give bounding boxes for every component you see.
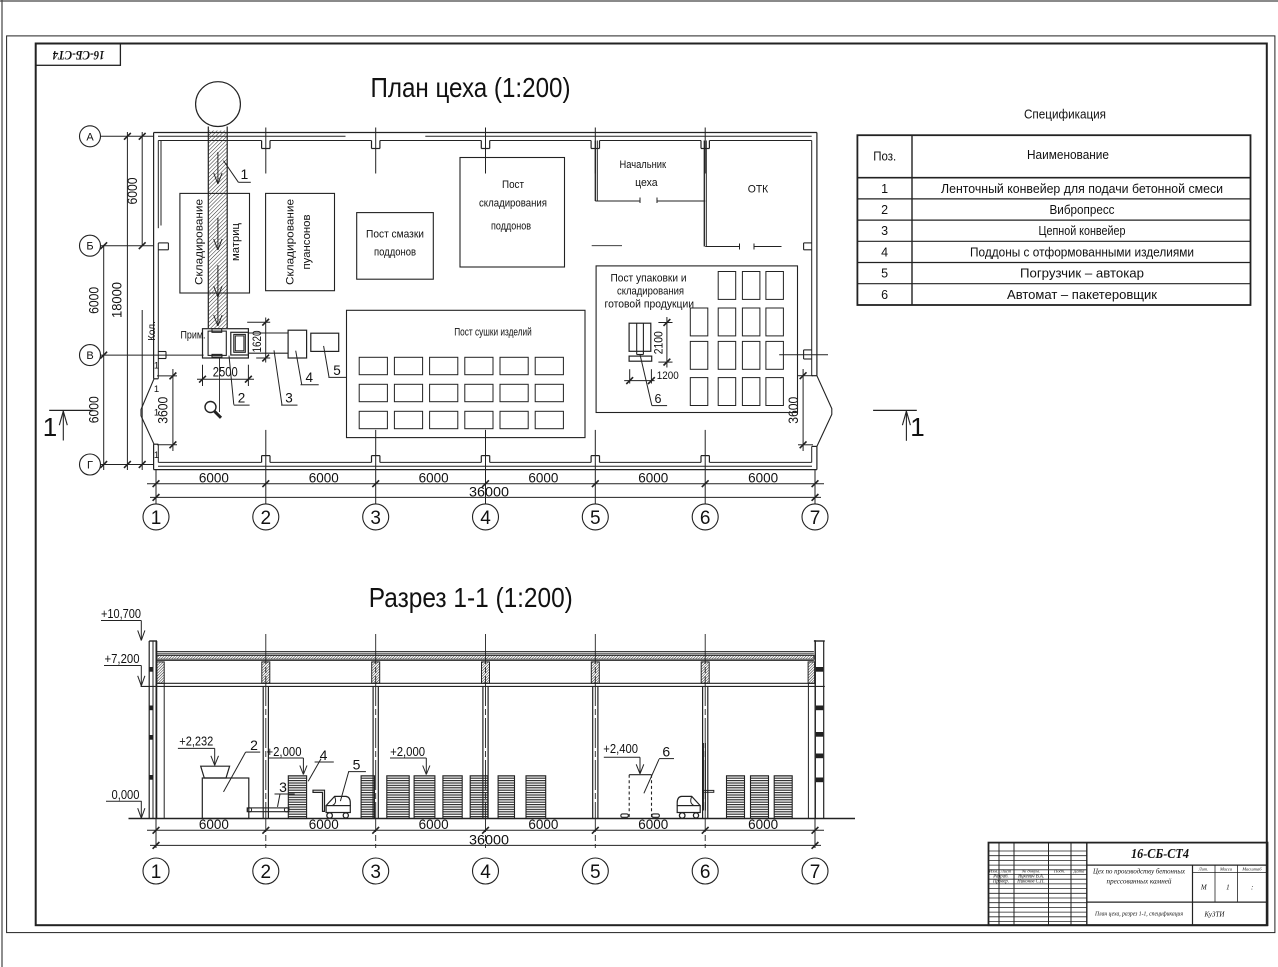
svg-text:Пост смазки: Пост смазки (366, 229, 424, 241)
svg-text:5: 5 (333, 363, 341, 378)
svg-text:2100: 2100 (651, 331, 665, 354)
svg-text:+7,200: +7,200 (105, 651, 140, 666)
svg-text:6000: 6000 (528, 816, 558, 832)
svg-text:3: 3 (370, 862, 381, 883)
svg-text:6: 6 (700, 862, 711, 883)
svg-text:4: 4 (480, 862, 491, 883)
svg-text:16-СБ-СТ4: 16-СБ-СТ4 (1131, 847, 1189, 862)
svg-text:Никонов С.П.: Никонов С.П. (1016, 879, 1044, 884)
svg-text:1: 1 (154, 408, 159, 419)
svg-text:План цеха, разрез 1-1, специфи: План цеха, разрез 1-1, спецификация (1094, 911, 1183, 918)
svg-text:6000: 6000 (124, 177, 140, 204)
svg-text:6000: 6000 (309, 469, 339, 485)
svg-text:Пост упаковки и: Пост упаковки и (611, 273, 687, 285)
svg-text:5: 5 (590, 508, 601, 529)
svg-text:матриц: матриц (230, 223, 242, 261)
svg-text:5: 5 (881, 267, 888, 281)
svg-text:+10,700: +10,700 (101, 606, 141, 621)
svg-text:4: 4 (480, 508, 491, 529)
svg-text:6000: 6000 (86, 396, 102, 423)
svg-text:1: 1 (151, 508, 162, 529)
svg-text:Б: Б (86, 241, 93, 253)
svg-text:Погрузчик – автокар: Погрузчик – автокар (1020, 267, 1144, 281)
svg-text:6000: 6000 (199, 816, 229, 832)
svg-text:Лист: Лист (1000, 869, 1012, 874)
svg-text:2: 2 (250, 737, 258, 753)
svg-text:3: 3 (279, 779, 287, 795)
svg-text:ОТК: ОТК (748, 183, 769, 195)
svg-text:6000: 6000 (748, 469, 778, 485)
svg-text:Автомат – пакетеровщик: Автомат – пакетеровщик (1007, 288, 1158, 302)
svg-text:Подп.: Подп. (1053, 869, 1065, 874)
svg-text:6: 6 (881, 288, 888, 302)
svg-text:6000: 6000 (199, 469, 229, 485)
svg-text:2500: 2500 (213, 364, 238, 380)
svg-text:Г: Г (87, 460, 93, 472)
svg-text:Спецификация: Спецификация (1024, 106, 1106, 121)
svg-text:2: 2 (881, 203, 888, 217)
svg-text:Масса: Масса (1219, 867, 1233, 872)
svg-text:складирования: складирования (617, 285, 684, 297)
svg-text:7: 7 (810, 862, 821, 883)
svg-text:Провер.: Провер. (992, 879, 1009, 884)
svg-text:6: 6 (655, 392, 662, 406)
svg-text:Пост сушки изделий: Пост сушки изделий (454, 326, 532, 338)
svg-text:6000: 6000 (309, 816, 339, 832)
svg-text:4: 4 (305, 370, 313, 385)
svg-text:1: 1 (881, 182, 888, 196)
svg-text:готовой продукции: готовой продукции (605, 299, 695, 311)
svg-text:Пост: Пост (502, 179, 524, 191)
svg-text:Прим.: Прим. (181, 329, 206, 341)
svg-text:Масштаб: Масштаб (1241, 867, 1262, 872)
svg-text:Вибропресс: Вибропресс (1050, 203, 1115, 217)
svg-text:Цех по производству бетонных: Цех по производству бетонных (1092, 868, 1186, 876)
svg-text:КуЗТИ: КуЗТИ (1204, 911, 1226, 919)
svg-text:Изм.: Изм. (988, 869, 998, 874)
svg-text:прессованных камней: прессованных камней (1107, 878, 1172, 886)
svg-text:складирования: складирования (479, 197, 547, 209)
svg-text:Складирование: Складирование (285, 199, 297, 285)
svg-text:6000: 6000 (528, 469, 558, 485)
svg-text:36000: 36000 (469, 832, 509, 848)
svg-text:4: 4 (320, 747, 328, 763)
svg-text:2: 2 (261, 508, 272, 529)
svg-text:6000: 6000 (638, 469, 668, 485)
svg-text::: : (1251, 884, 1253, 892)
svg-text:Лит.: Лит. (1198, 867, 1209, 872)
svg-text:1200: 1200 (657, 370, 679, 382)
svg-text:6: 6 (700, 508, 711, 529)
svg-text:36000: 36000 (469, 484, 509, 500)
svg-text:Цепной конвейер: Цепной конвейер (1039, 224, 1126, 238)
svg-text:План цеха (1:200): План цеха (1:200) (371, 72, 571, 103)
svg-text:№ докум.: № докум. (1021, 869, 1040, 874)
svg-text:1: 1 (154, 450, 159, 461)
svg-text:А: А (86, 131, 94, 143)
svg-text:2: 2 (261, 862, 272, 883)
svg-text:1: 1 (1226, 884, 1230, 892)
svg-text:поддонов: поддонов (491, 220, 531, 232)
svg-text:6000: 6000 (748, 816, 778, 832)
svg-text:1: 1 (154, 384, 159, 395)
svg-text:+2,000: +2,000 (267, 744, 302, 759)
svg-text:1: 1 (151, 862, 162, 883)
svg-text:Дата: Дата (1073, 869, 1085, 874)
svg-text:Ленточный конвейер для подачи: Ленточный конвейер для подачи бетонной с… (941, 182, 1223, 196)
svg-text:1620: 1620 (250, 330, 264, 352)
svg-text:+2,000: +2,000 (390, 744, 425, 759)
svg-text:поддонов: поддонов (374, 247, 416, 259)
svg-text:2: 2 (238, 391, 246, 406)
svg-text:цеха: цеха (635, 177, 658, 189)
svg-text:Поддоны с отформованными издел: Поддоны с отформованными изделиями (970, 245, 1194, 259)
svg-text:+2,232: +2,232 (179, 734, 213, 749)
svg-text:В: В (86, 350, 93, 362)
svg-text:3: 3 (370, 508, 381, 529)
svg-text:1: 1 (910, 412, 924, 442)
svg-text:16-СБ-СТ4: 16-СБ-СТ4 (53, 48, 105, 62)
svg-text:Наименование: Наименование (1027, 148, 1109, 162)
svg-text:18000: 18000 (109, 282, 125, 318)
svg-text:Складирование: Складирование (194, 199, 206, 285)
svg-text:5: 5 (353, 756, 361, 772)
svg-text:6: 6 (662, 744, 670, 760)
svg-text:+2,400: +2,400 (603, 741, 638, 756)
svg-text:1: 1 (154, 361, 159, 372)
svg-text:Поз.: Поз. (873, 150, 896, 164)
svg-text:6000: 6000 (419, 469, 449, 485)
svg-text:5: 5 (590, 862, 601, 883)
svg-text:Разрез 1-1 (1:200): Разрез 1-1 (1:200) (369, 582, 573, 613)
svg-text:7: 7 (810, 508, 821, 529)
svg-text:3600: 3600 (785, 397, 801, 424)
svg-text:3: 3 (285, 391, 293, 406)
svg-text:0,000: 0,000 (112, 787, 140, 802)
svg-text:1: 1 (43, 412, 57, 442)
svg-text:Начальник: Начальник (620, 159, 667, 171)
svg-text:Кол.: Кол. (147, 321, 158, 341)
svg-text:6000: 6000 (638, 816, 668, 832)
svg-text:пуансонов: пуансонов (301, 214, 313, 269)
svg-text:4: 4 (881, 245, 888, 259)
svg-text:6000: 6000 (419, 816, 449, 832)
svg-text:М: М (1200, 884, 1208, 892)
svg-text:6000: 6000 (86, 287, 102, 314)
svg-text:3: 3 (881, 224, 888, 238)
svg-text:1: 1 (241, 166, 249, 182)
